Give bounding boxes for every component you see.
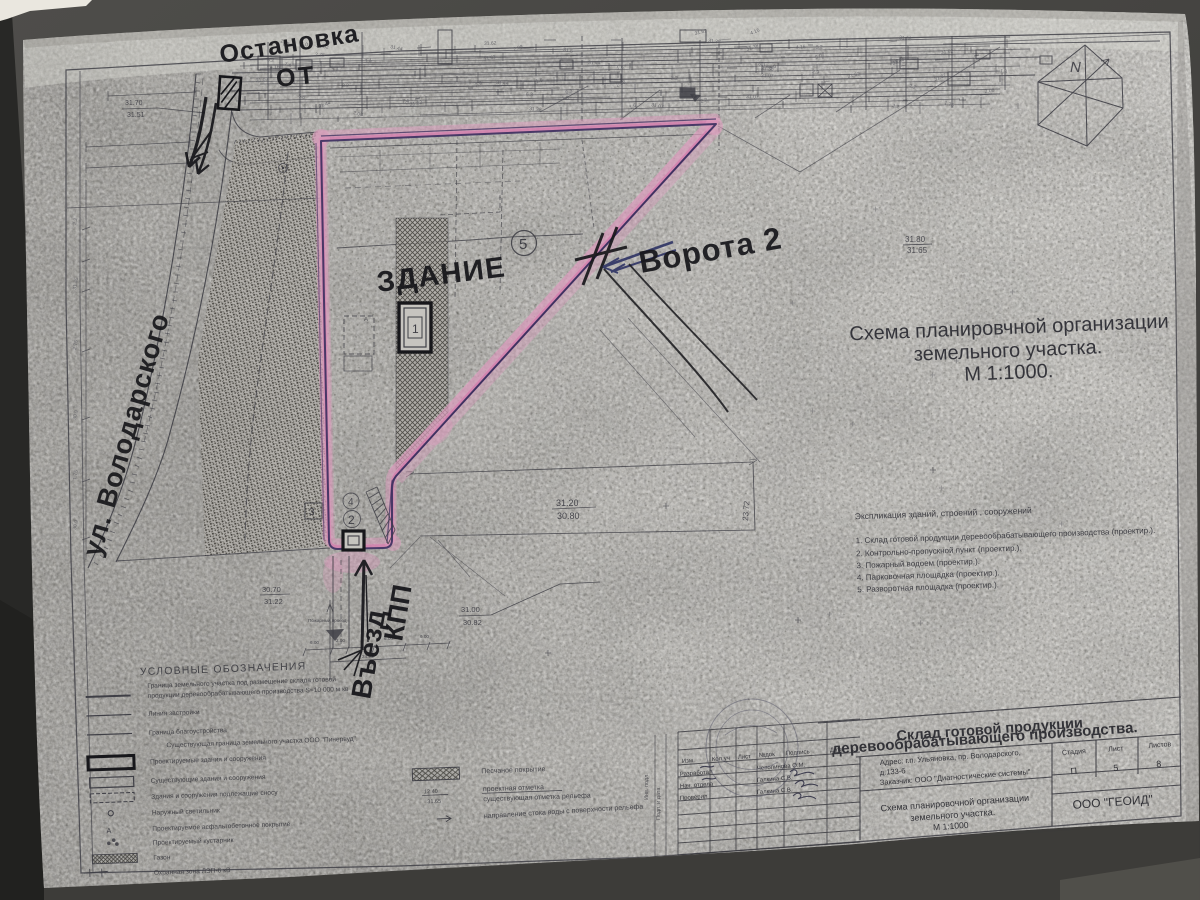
svg-text:31.07: 31.07 bbox=[256, 77, 269, 84]
svg-text:31.44: 31.44 bbox=[588, 60, 601, 66]
svg-text:Подп. и дата: Подп. и дата bbox=[656, 787, 662, 820]
svg-text:31.51: 31.51 bbox=[127, 112, 145, 119]
svg-text:1.8: 1.8 bbox=[562, 95, 570, 102]
svg-text:Лист: Лист bbox=[1108, 745, 1124, 753]
svg-text:3.2: 3.2 bbox=[671, 76, 678, 82]
svg-text:д.133-б: д.133-б bbox=[879, 766, 905, 777]
svg-text:М 1:1000.: М 1:1000. bbox=[964, 360, 1054, 386]
svg-text:23.72: 23.72 bbox=[741, 500, 751, 521]
svg-text:Изм.: Изм. bbox=[682, 758, 696, 765]
svg-text:Дата: Дата bbox=[830, 747, 844, 754]
svg-text:30.70: 30.70 bbox=[262, 585, 281, 594]
svg-text:2.9: 2.9 bbox=[812, 69, 820, 76]
svg-text:6.00: 6.00 bbox=[420, 634, 429, 639]
svg-text:5: 5 bbox=[1113, 763, 1119, 773]
svg-text:31.00: 31.00 bbox=[461, 605, 480, 614]
svg-text:A: A bbox=[364, 317, 368, 323]
svg-text:31.07: 31.07 bbox=[761, 73, 774, 79]
svg-text:7.4: 7.4 bbox=[402, 99, 409, 105]
svg-text:2.90: 2.90 bbox=[336, 638, 345, 643]
svg-text:N: N bbox=[1070, 59, 1081, 76]
svg-text:2: 2 bbox=[348, 513, 355, 527]
svg-text:ОТ: ОТ bbox=[275, 61, 318, 93]
svg-text:31.62: 31.62 bbox=[484, 41, 497, 47]
svg-text:31.44: 31.44 bbox=[496, 80, 509, 87]
svg-text:№док: №док bbox=[759, 751, 776, 759]
svg-text:5: 5 bbox=[519, 236, 527, 253]
svg-text:2.2: 2.2 bbox=[72, 217, 79, 225]
svg-text:31.22: 31.22 bbox=[264, 597, 283, 606]
svg-text:8: 8 bbox=[1156, 759, 1162, 769]
svg-text:3.2: 3.2 bbox=[342, 83, 349, 89]
svg-text:6.3: 6.3 bbox=[526, 92, 533, 98]
svg-text:Газон: Газон bbox=[153, 854, 171, 862]
svg-text:4.16: 4.16 bbox=[796, 44, 806, 51]
svg-text:Инв. подл.: Инв. подл. bbox=[644, 773, 650, 800]
svg-text:6.00: 6.00 bbox=[310, 640, 319, 645]
svg-text:31.07: 31.07 bbox=[746, 94, 759, 101]
svg-text:31.20: 31.20 bbox=[556, 498, 579, 508]
svg-text:3.2: 3.2 bbox=[816, 44, 824, 51]
svg-text:31.65: 31.65 bbox=[427, 799, 441, 805]
svg-text:31.70: 31.70 bbox=[125, 100, 143, 107]
svg-text:12.40: 12.40 bbox=[424, 789, 438, 795]
svg-text:Кол.уч: Кол.уч bbox=[712, 756, 730, 763]
svg-text:П: П bbox=[1070, 766, 1077, 776]
svg-text:3: 3 bbox=[309, 507, 315, 518]
svg-text:7.4: 7.4 bbox=[364, 58, 372, 65]
svg-text:Пожарный проезд: Пожарный проезд bbox=[308, 617, 347, 623]
svg-text:30.80: 30.80 bbox=[557, 511, 580, 521]
svg-text:Лист: Лист bbox=[738, 754, 752, 761]
svg-text:30.82: 30.82 bbox=[463, 618, 482, 627]
svg-text:1: 1 bbox=[412, 322, 419, 336]
svg-text:А: А bbox=[106, 826, 111, 835]
svg-text:4: 4 bbox=[348, 497, 354, 508]
